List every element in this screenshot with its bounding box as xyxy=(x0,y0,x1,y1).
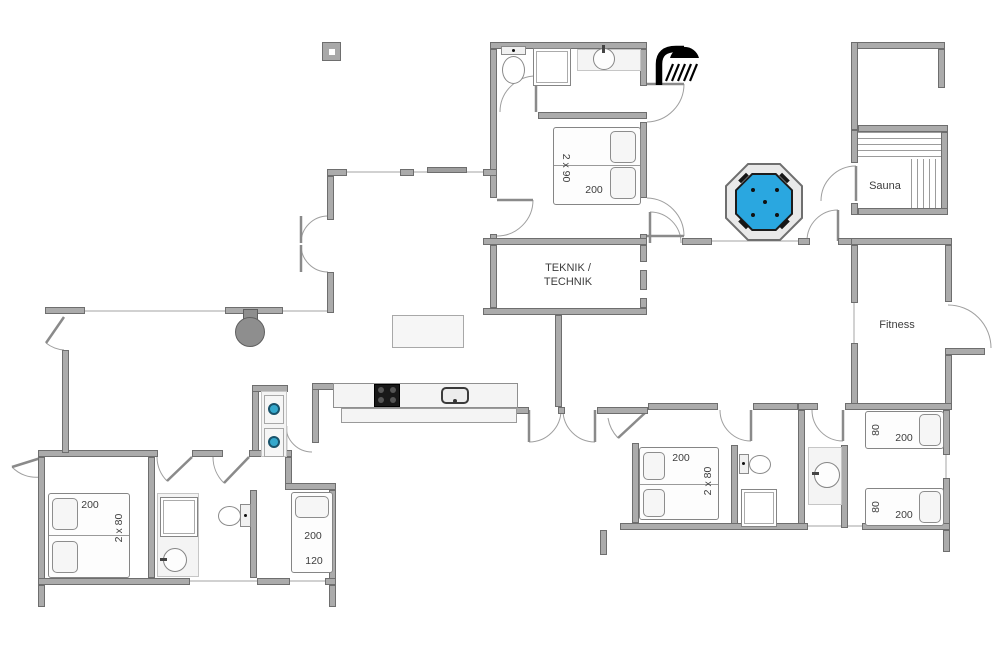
wall xyxy=(851,343,858,407)
wall xyxy=(851,42,858,130)
wall xyxy=(943,478,950,527)
kitchen-counter xyxy=(333,383,518,408)
bed-pillow xyxy=(919,491,941,523)
sink-tap xyxy=(602,45,605,53)
shower-icon xyxy=(652,38,700,86)
room-label-teknik-line2: TECHNIK xyxy=(498,276,638,288)
wall xyxy=(682,238,712,245)
wall xyxy=(327,272,334,313)
wall xyxy=(400,169,414,176)
wall xyxy=(148,457,155,578)
wall xyxy=(62,350,69,453)
wall xyxy=(640,122,647,198)
wall xyxy=(943,530,950,552)
bed-pillow xyxy=(919,414,941,446)
bed-pillow xyxy=(295,496,329,518)
wall xyxy=(798,410,805,530)
bed-width-label: 80 xyxy=(870,415,882,445)
hot-tub-jet xyxy=(775,188,779,192)
bed-size-label: 2 x 80 xyxy=(113,508,125,548)
bed-size-label: 2 x 80 xyxy=(702,461,714,501)
hot-tub-jet xyxy=(751,188,755,192)
hot-tub-jet xyxy=(751,213,755,217)
wall xyxy=(640,270,647,290)
sink-tap xyxy=(812,472,819,475)
toilet-bowl xyxy=(502,56,525,84)
stove-burner xyxy=(378,387,384,393)
wall xyxy=(632,443,639,523)
shower-inner-frame xyxy=(536,51,568,83)
wall xyxy=(483,238,647,245)
wall xyxy=(490,245,497,308)
toilet-flush-dot xyxy=(512,49,515,52)
room-label-fitness: Fitness xyxy=(872,319,922,331)
wall xyxy=(851,42,945,49)
shower-stall xyxy=(160,497,198,537)
wall xyxy=(851,238,952,245)
wall xyxy=(327,169,347,176)
kitchen-island-front xyxy=(341,408,517,423)
wall xyxy=(941,132,948,215)
sink-basin xyxy=(814,462,840,488)
hot-tub-jet xyxy=(775,213,779,217)
wall xyxy=(945,355,952,407)
bed-pillow xyxy=(643,489,665,517)
wall xyxy=(858,125,948,132)
bed-width-label: 80 xyxy=(870,492,882,522)
stove-burner xyxy=(390,397,396,403)
room-label-sauna: Sauna xyxy=(860,180,910,192)
wall xyxy=(38,450,158,457)
wall xyxy=(483,308,647,315)
wall xyxy=(483,169,497,176)
wall xyxy=(851,245,858,303)
wall xyxy=(555,315,562,407)
wall xyxy=(845,403,952,410)
room-label-teknik-line1: TEKNIK / xyxy=(498,262,638,274)
wall xyxy=(648,403,718,410)
wall xyxy=(558,407,565,414)
wall xyxy=(285,483,336,490)
wall xyxy=(858,208,948,215)
sauna-bench-vert xyxy=(911,159,941,208)
wall xyxy=(38,457,45,585)
kitchen-sink-tap xyxy=(453,399,457,403)
washer-door xyxy=(268,403,280,415)
wall xyxy=(252,385,259,455)
wall xyxy=(597,407,648,414)
wall xyxy=(945,348,985,355)
wall xyxy=(45,307,85,314)
dryer-door xyxy=(268,436,280,448)
wall xyxy=(192,450,223,457)
shower-stall xyxy=(741,489,777,527)
wall xyxy=(945,245,952,302)
wall xyxy=(490,49,497,172)
toilet-flush-dot xyxy=(244,514,247,517)
wall xyxy=(312,383,319,443)
wall xyxy=(841,445,848,528)
toilet-bowl xyxy=(218,506,241,526)
bed-length-label: 200 xyxy=(75,499,105,511)
shower-stall xyxy=(533,48,571,86)
bed-length-label: 200 xyxy=(666,452,696,464)
stove-burner xyxy=(378,397,384,403)
dining-table xyxy=(392,315,464,348)
shower-inner-frame xyxy=(744,492,774,524)
wall xyxy=(938,49,945,88)
wall xyxy=(640,298,647,308)
hot-tub-jet xyxy=(763,200,767,204)
wall xyxy=(538,112,647,119)
wall xyxy=(851,130,858,163)
wall xyxy=(943,410,950,455)
wall xyxy=(620,523,808,530)
wall xyxy=(600,530,607,555)
bed-pillow xyxy=(52,541,78,573)
stove-burner xyxy=(390,387,396,393)
sliding-door xyxy=(427,167,467,173)
wall xyxy=(250,490,257,578)
floor-plan: 2 x 90 200 TEKNIK / TECHNIK Sauna Fitnes… xyxy=(0,0,1000,656)
bed-pillow xyxy=(643,452,665,480)
bed-length-label: 200 xyxy=(579,184,609,196)
bed-length-label: 200 xyxy=(889,509,919,521)
wall xyxy=(753,403,798,410)
wall xyxy=(798,403,818,410)
sink-tap xyxy=(160,558,167,561)
bed-length-label: 200 xyxy=(298,530,328,542)
wall xyxy=(798,238,810,245)
wall xyxy=(257,578,290,585)
window-lines xyxy=(85,172,946,581)
wall xyxy=(327,176,334,220)
wall xyxy=(731,445,738,530)
sauna-bench-horiz xyxy=(858,132,941,159)
wall xyxy=(640,245,647,262)
toilet-bowl xyxy=(749,455,771,474)
wall xyxy=(38,585,45,607)
shower-inner-frame xyxy=(163,500,195,534)
bed-width-label: 120 xyxy=(299,555,329,567)
fireplace-stove xyxy=(235,317,265,347)
wall xyxy=(329,585,336,607)
wall xyxy=(851,203,858,215)
wall xyxy=(38,578,190,585)
bed-size-label: 2 x 90 xyxy=(560,148,572,188)
toilet-flush-dot xyxy=(742,462,745,465)
chimney-inner xyxy=(328,48,336,56)
bed-length-label: 200 xyxy=(889,432,919,444)
wall xyxy=(325,578,336,585)
wall xyxy=(640,49,647,86)
bed-pillow xyxy=(610,131,636,163)
bed-pillow xyxy=(610,167,636,199)
